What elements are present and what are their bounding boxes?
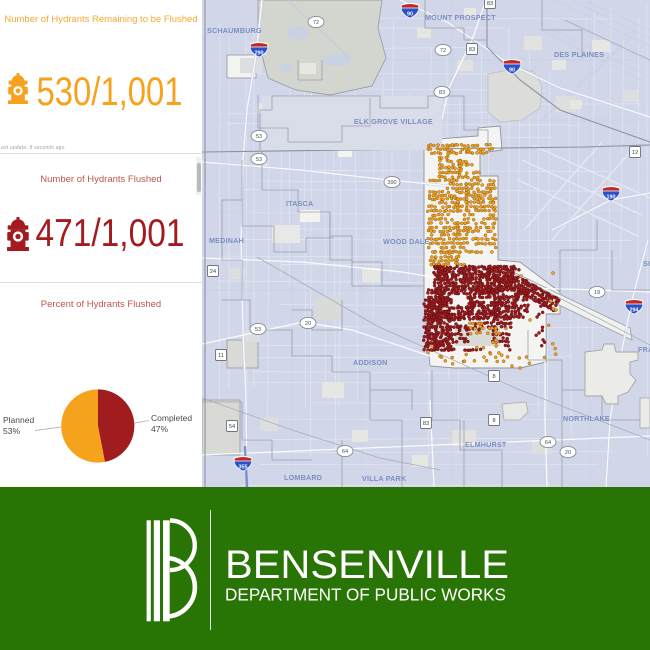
svg-text:83: 83 — [487, 1, 493, 7]
svg-text:FRA: FRA — [638, 345, 650, 354]
svg-text:8: 8 — [492, 418, 495, 424]
svg-text:390: 390 — [387, 180, 396, 186]
svg-text:11: 11 — [218, 353, 224, 359]
svg-text:53: 53 — [256, 134, 262, 140]
svg-text:SC: SC — [643, 259, 650, 268]
svg-text:64: 64 — [342, 449, 348, 455]
svg-text:DES PLAINES: DES PLAINES — [554, 50, 604, 59]
svg-text:DEPARTMENT OF PUBLIC WORKS: DEPARTMENT OF PUBLIC WORKS — [225, 584, 506, 604]
svg-text:8: 8 — [492, 374, 495, 380]
svg-text:83: 83 — [469, 47, 475, 53]
svg-text:MOUNT PROSPECT: MOUNT PROSPECT — [425, 13, 496, 22]
svg-text:BENSENVILLE: BENSENVILLE — [225, 543, 509, 587]
svg-text:19: 19 — [594, 290, 600, 296]
svg-text:20: 20 — [565, 450, 571, 456]
svg-text:54: 54 — [229, 424, 235, 430]
svg-text:64: 64 — [545, 440, 551, 446]
svg-text:294: 294 — [630, 307, 639, 313]
svg-text:530/1,001: 530/1,001 — [37, 70, 183, 114]
svg-text:83: 83 — [423, 421, 429, 427]
svg-text:471/1,001: 471/1,001 — [36, 212, 185, 255]
svg-text:53: 53 — [256, 157, 262, 163]
svg-text:ELK GROVE VILLAGE: ELK GROVE VILLAGE — [354, 117, 433, 126]
svg-text:20: 20 — [305, 321, 311, 327]
svg-text:ADDISON: ADDISON — [353, 358, 388, 367]
svg-text:72: 72 — [440, 48, 446, 54]
svg-text:24: 24 — [210, 269, 216, 275]
svg-text:WOOD DALE: WOOD DALE — [383, 237, 430, 246]
svg-text:90: 90 — [407, 11, 413, 17]
svg-text:12: 12 — [632, 150, 638, 156]
svg-text:NORTHLAKE: NORTHLAKE — [563, 414, 610, 423]
svg-text:190: 190 — [607, 194, 616, 200]
svg-text:90: 90 — [509, 67, 515, 73]
svg-text:MEDINAH: MEDINAH — [209, 236, 244, 245]
svg-text:VILLA PARK: VILLA PARK — [362, 474, 407, 483]
svg-text:290: 290 — [255, 50, 264, 56]
svg-text:LOMBARD: LOMBARD — [284, 473, 322, 482]
svg-text:SCHAUMBURG: SCHAUMBURG — [207, 26, 262, 35]
svg-text:ELMHURST: ELMHURST — [465, 440, 507, 449]
svg-text:355: 355 — [239, 464, 248, 470]
svg-text:83: 83 — [439, 90, 445, 96]
svg-text:53: 53 — [255, 327, 261, 333]
svg-text:ITASCA: ITASCA — [286, 199, 313, 208]
svg-text:72: 72 — [313, 20, 319, 26]
